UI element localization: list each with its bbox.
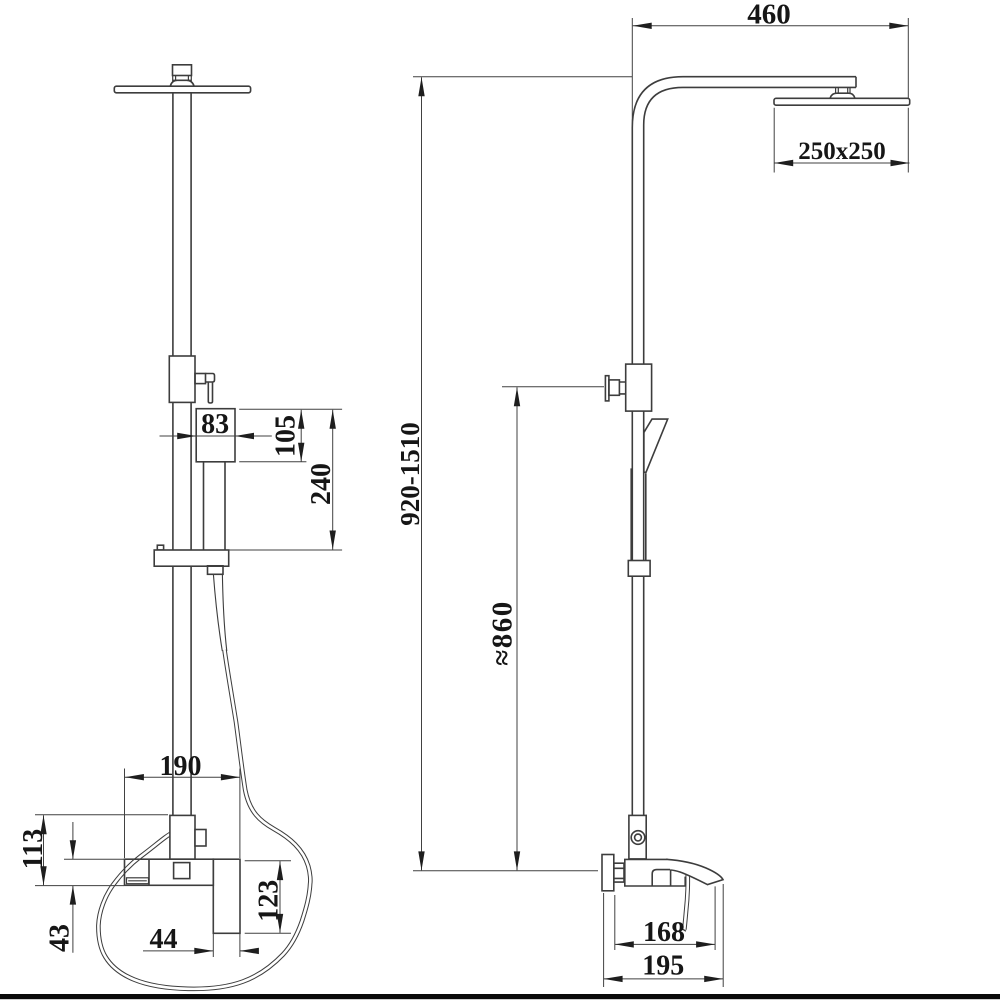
svg-text:195: 195 — [642, 951, 684, 982]
svg-text:460: 460 — [747, 0, 791, 31]
svg-text:105: 105 — [271, 415, 302, 457]
svg-text:123: 123 — [254, 880, 285, 922]
svg-text:43: 43 — [45, 924, 76, 952]
svg-text:240: 240 — [306, 463, 337, 505]
svg-text:250x250: 250x250 — [798, 138, 886, 165]
svg-text:190: 190 — [160, 751, 202, 782]
svg-text:920-1510: 920-1510 — [395, 422, 425, 526]
svg-text:≈860: ≈860 — [487, 600, 519, 665]
svg-text:44: 44 — [150, 924, 178, 955]
svg-text:83: 83 — [201, 409, 229, 440]
svg-text:113: 113 — [18, 829, 49, 869]
svg-text:168: 168 — [643, 917, 685, 948]
